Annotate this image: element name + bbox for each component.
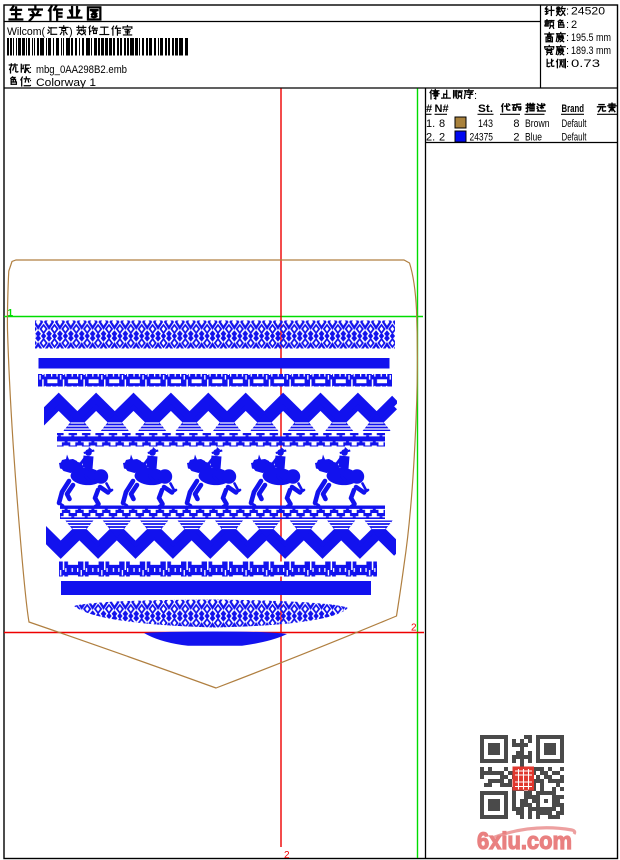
svg-text::: : (566, 19, 569, 31)
svg-text:Brown: Brown (525, 118, 550, 130)
svg-text::: : (566, 6, 569, 18)
svg-text:24520: 24520 (571, 6, 605, 18)
svg-text::: : (566, 32, 569, 44)
svg-text:mbg_0AA298B2.emb: mbg_0AA298B2.emb (36, 64, 127, 76)
svg-text:8: 8 (513, 118, 519, 130)
svg-text::: : (29, 64, 32, 76)
svg-text::: : (29, 77, 32, 89)
svg-text:195.5 mm: 195.5 mm (571, 32, 611, 44)
svg-text:0.73: 0.73 (571, 58, 600, 70)
svg-text:1: 1 (8, 308, 14, 319)
svg-text:2: 2 (439, 132, 445, 144)
svg-text:Blue: Blue (525, 132, 542, 144)
svg-text:Brand: Brand (562, 103, 585, 115)
svg-text::: : (474, 90, 477, 102)
svg-text:24375: 24375 (470, 132, 494, 144)
svg-text::: : (566, 58, 569, 70)
svg-text:143: 143 (478, 118, 493, 130)
svg-text:2.: 2. (426, 132, 435, 144)
svg-text:2: 2 (284, 850, 290, 860)
svg-text:Colorway 1: Colorway 1 (36, 77, 96, 89)
svg-text:N#: N# (435, 103, 449, 115)
svg-text:St.: St. (478, 103, 493, 115)
svg-text:): ) (69, 26, 73, 38)
svg-text:8: 8 (439, 118, 445, 130)
svg-text:#: # (426, 103, 432, 115)
svg-text:1.: 1. (426, 118, 435, 130)
svg-text:189.3 mm: 189.3 mm (571, 45, 611, 57)
svg-text:Default: Default (562, 132, 587, 144)
svg-text:2: 2 (571, 19, 577, 31)
svg-text:Default: Default (562, 118, 587, 130)
svg-text:2: 2 (411, 623, 417, 634)
svg-text:6xiu.com: 6xiu.com (477, 828, 572, 855)
svg-text:Wilcom(: Wilcom( (7, 26, 45, 38)
svg-text::: : (566, 45, 569, 57)
svg-text:2: 2 (513, 132, 519, 144)
